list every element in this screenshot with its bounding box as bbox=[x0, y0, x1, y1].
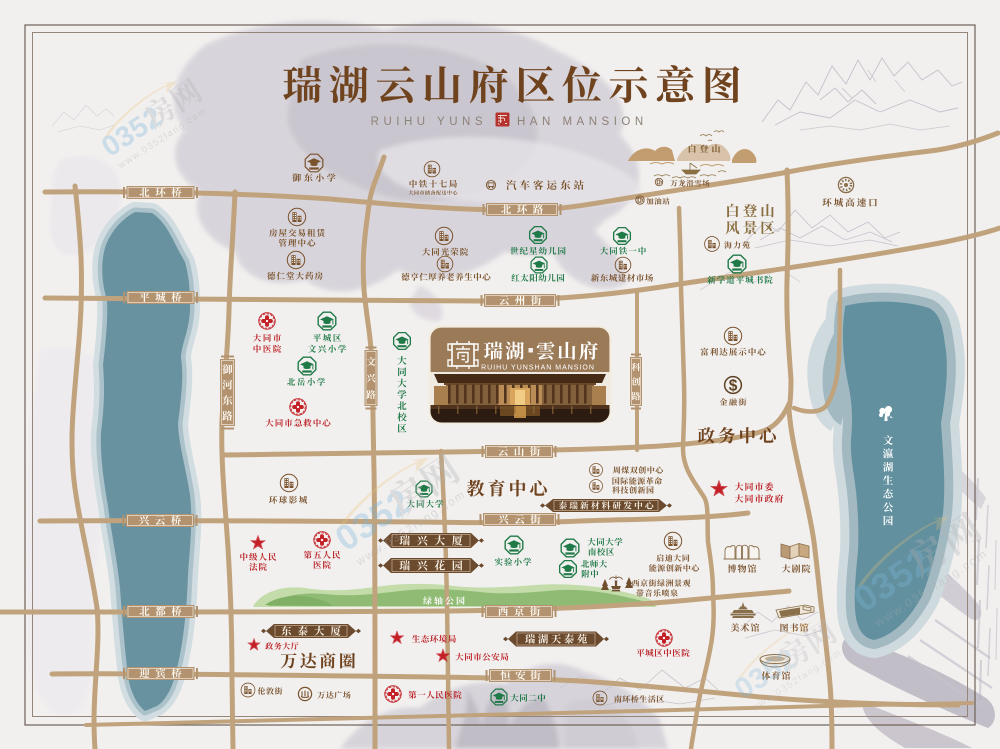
svg-text:RUIHU YUNSHAN MANSION: RUIHU YUNSHAN MANSION bbox=[481, 365, 595, 372]
svg-text:HAN MANSION: HAN MANSION bbox=[517, 116, 648, 128]
svg-text:RUIHU YUNS: RUIHU YUNS bbox=[371, 116, 487, 128]
